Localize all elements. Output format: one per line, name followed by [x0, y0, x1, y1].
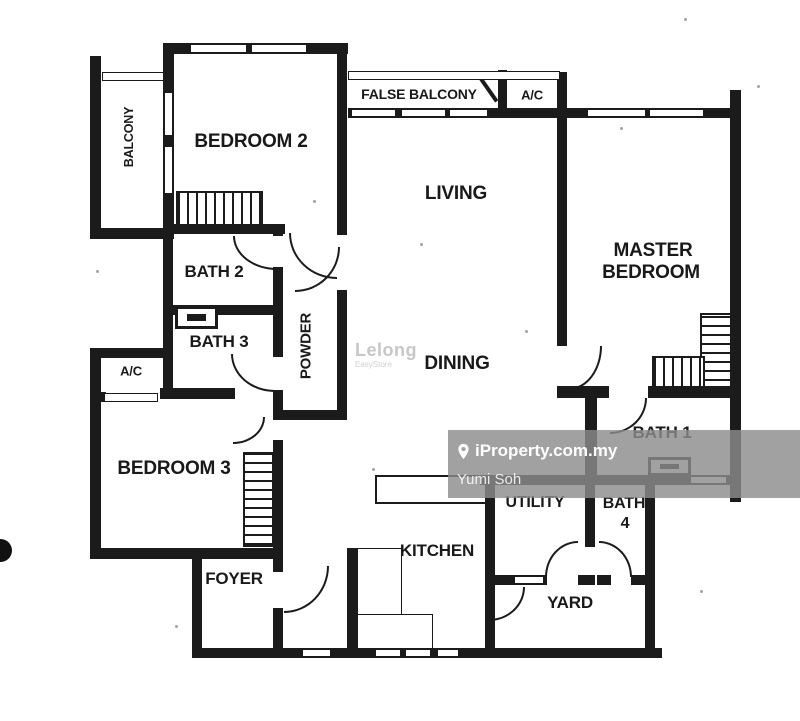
- ac-left-window: [104, 393, 158, 402]
- master-bottom-wall-right: [648, 386, 741, 398]
- foyer-right-stub-bottom: [273, 608, 283, 654]
- room-label-bath4-line2: 4: [621, 515, 630, 533]
- room-label-yard: YARD: [547, 593, 593, 613]
- balcony-bottom-wall: [90, 228, 174, 239]
- utility-bottom-wall-right: [578, 575, 595, 585]
- master-bedroom-door: [569, 346, 602, 390]
- false-balcony-window-3: [449, 109, 488, 117]
- utility-window: [514, 576, 544, 584]
- master-window-2: [649, 109, 704, 117]
- lelong-watermark: Lelong EasyStore: [355, 341, 417, 369]
- bedroom2-bottom-wall: [163, 224, 285, 234]
- bedroom3-door: [233, 417, 265, 444]
- bedroom2-right-wall: [337, 43, 347, 235]
- bedroom3-right-wall: [273, 440, 283, 558]
- foyer-right-stub-top: [273, 558, 283, 572]
- powder-bottom-wall: [283, 410, 347, 420]
- scan-artifact: [0, 539, 12, 562]
- room-label-false-balcony: FALSE BALCONY: [361, 86, 477, 102]
- master-bottom-wall-left: [557, 386, 609, 398]
- false-balcony-top-rail: [348, 71, 560, 80]
- balcony-left-wall: [90, 56, 101, 238]
- bedroom3-left-wall: [90, 392, 101, 558]
- room-label-kitchen: KITCHEN: [400, 541, 474, 561]
- entry-door: [284, 566, 329, 613]
- agent-name-watermark: Yumi Soh: [457, 471, 521, 488]
- room-label-bath2: BATH 2: [185, 262, 244, 282]
- bath-right-wall: [273, 267, 283, 357]
- master-window-1: [587, 109, 646, 117]
- room-label-master-line2: BEDROOM: [602, 262, 700, 284]
- room-label-powder: POWDER: [298, 313, 315, 379]
- bath4-door: [599, 541, 632, 577]
- balcony-door-slit-1: [164, 92, 173, 136]
- room-label-ac-top: A/C: [521, 88, 543, 103]
- false-balcony-window-2: [401, 109, 446, 117]
- room-label-living: LIVING: [425, 183, 487, 205]
- kitchen-window-3: [437, 649, 459, 657]
- lelong-watermark-text: Lelong: [355, 341, 417, 359]
- room-label-bedroom2: BEDROOM 2: [194, 131, 307, 153]
- bath3-door: [231, 354, 275, 392]
- lelong-watermark-subtext: EasyStore: [355, 361, 417, 369]
- bedroom2-left-wall: [163, 43, 174, 235]
- false-balcony-window-1: [351, 109, 396, 117]
- powder-door: [295, 247, 340, 292]
- kitchen-counter-left: [357, 548, 402, 618]
- balcony-door-slit-2: [164, 146, 173, 194]
- bedroom3-bottom-wall: [90, 548, 283, 559]
- entry-threshold: [302, 649, 331, 657]
- kitchen-left-wall: [347, 548, 357, 654]
- utility-door: [545, 541, 578, 577]
- location-pin-icon: [457, 443, 470, 465]
- bedroom2-wardrobe: [176, 191, 263, 227]
- bedroom2-window-2: [251, 44, 307, 53]
- powder-right-wall: [337, 290, 347, 420]
- bedroom2-window-1: [190, 44, 247, 53]
- room-label-foyer: FOYER: [205, 569, 263, 589]
- bath2-sink: [175, 306, 218, 329]
- room-label-dining: DINING: [424, 353, 489, 375]
- iproperty-watermark-text: iProperty.com.my: [475, 441, 617, 461]
- kitchen-counter-bottom: [357, 614, 433, 650]
- room-label-bath3: BATH 3: [190, 332, 249, 352]
- bath4-right-wall: [645, 483, 655, 658]
- living-master-divider: [557, 72, 567, 346]
- bedroom3-top-wall: [160, 388, 235, 399]
- bath-right-stub-top: [273, 224, 283, 236]
- bedroom3-wardrobe: [243, 452, 274, 547]
- yard-door: [489, 587, 525, 621]
- bath3-right-stub: [273, 390, 283, 420]
- utility-left-wall: [485, 475, 495, 657]
- room-label-balcony: BALCONY: [122, 107, 136, 167]
- floor-plan: BALCONY BEDROOM 2 FALSE BALCONY A/C LIVI…: [0, 0, 800, 721]
- foyer-left-wall: [192, 558, 202, 654]
- kitchen-window-2: [405, 649, 431, 657]
- room-label-master-line1: MASTER: [613, 240, 692, 262]
- iproperty-watermark-band: iProperty.com.my Yumi Soh: [448, 430, 800, 498]
- kitchen-window-1: [375, 649, 401, 657]
- balcony-top-window: [102, 72, 164, 81]
- room-label-bedroom3: BEDROOM 3: [117, 458, 230, 480]
- room-label-ac-left: A/C: [120, 364, 142, 379]
